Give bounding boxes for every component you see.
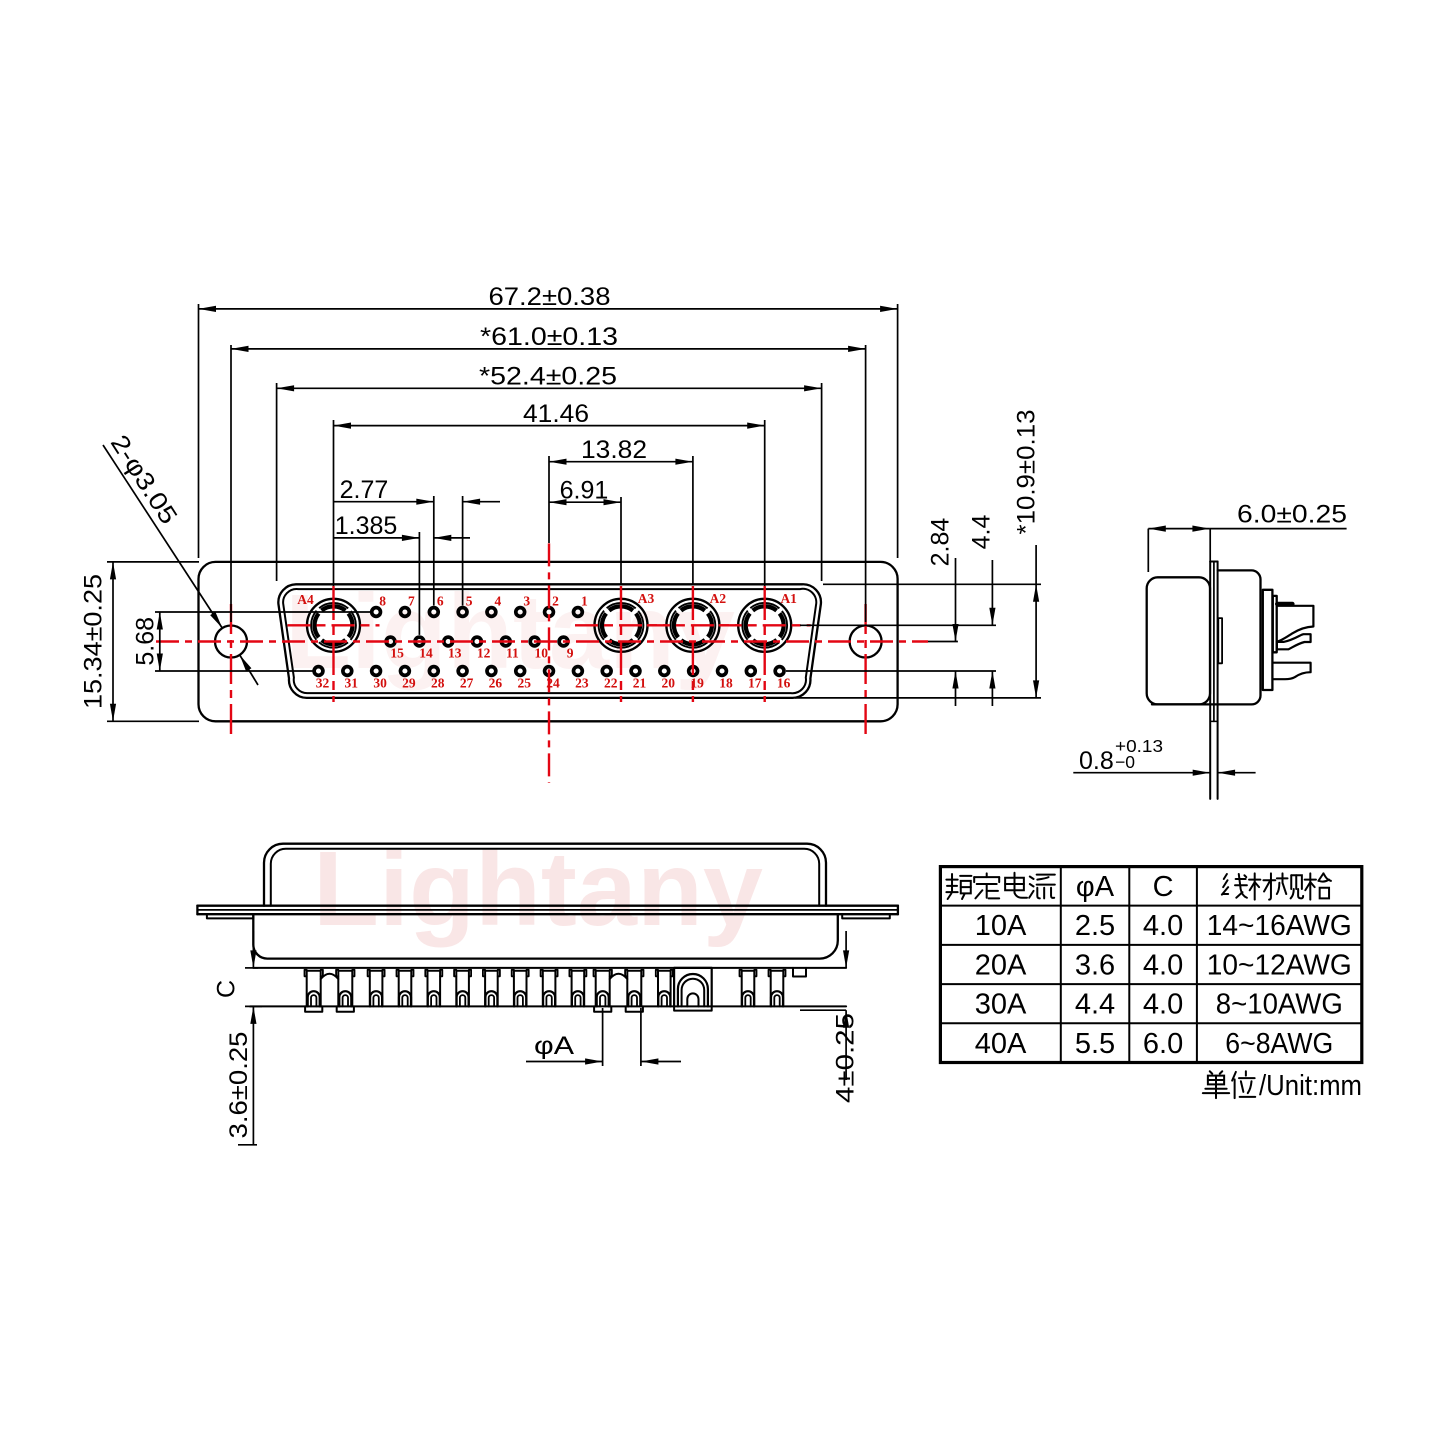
svg-text:/Unit:mm: /Unit:mm: [1259, 1070, 1362, 1102]
svg-text:8: 8: [379, 593, 386, 608]
svg-text:13: 13: [448, 646, 462, 661]
svg-text:6.0: 6.0: [1143, 1028, 1183, 1060]
svg-text:φA: φA: [534, 1032, 574, 1060]
svg-text:40A: 40A: [975, 1028, 1027, 1060]
svg-text:5: 5: [466, 593, 473, 608]
svg-text:4.0: 4.0: [1143, 910, 1183, 942]
svg-text:3.6: 3.6: [1075, 950, 1115, 982]
svg-text:15: 15: [390, 646, 404, 661]
svg-text:25: 25: [517, 676, 531, 691]
svg-text:6.91: 6.91: [560, 476, 609, 504]
svg-text:31: 31: [345, 676, 359, 691]
svg-text:41.46: 41.46: [523, 400, 589, 428]
svg-text:4: 4: [495, 593, 502, 608]
svg-text:32: 32: [316, 676, 330, 691]
svg-text:4.4: 4.4: [1075, 989, 1115, 1021]
svg-text:14: 14: [419, 646, 433, 661]
svg-text:8~10AWG: 8~10AWG: [1216, 989, 1343, 1021]
svg-text:14~16AWG: 14~16AWG: [1207, 910, 1352, 942]
svg-text:67.2±0.38: 67.2±0.38: [489, 283, 611, 311]
svg-text:φA: φA: [1076, 871, 1115, 903]
svg-text:30A: 30A: [975, 989, 1027, 1021]
svg-text:4.0: 4.0: [1143, 950, 1183, 982]
svg-text:1: 1: [581, 593, 588, 608]
svg-text:−0: −0: [1115, 752, 1135, 772]
svg-text:27: 27: [460, 676, 474, 691]
svg-text:20A: 20A: [975, 950, 1027, 982]
svg-text:2.84: 2.84: [927, 518, 955, 567]
svg-text:10A: 10A: [975, 910, 1027, 942]
svg-text:1.385: 1.385: [335, 512, 398, 540]
svg-text:2: 2: [552, 593, 559, 608]
svg-text:13.82: 13.82: [581, 436, 647, 464]
svg-text:15.34±0.25: 15.34±0.25: [80, 574, 108, 709]
svg-text:28: 28: [431, 676, 445, 691]
svg-text:0.8: 0.8: [1079, 747, 1114, 775]
svg-text:2.5: 2.5: [1075, 910, 1115, 942]
svg-text:*52.4±0.25: *52.4±0.25: [479, 363, 617, 391]
svg-text:C: C: [213, 980, 241, 998]
svg-text:29: 29: [402, 676, 416, 691]
svg-text:11: 11: [506, 646, 519, 661]
svg-text:16: 16: [777, 676, 791, 691]
svg-text:5.68: 5.68: [132, 617, 160, 666]
svg-text:A2: A2: [710, 591, 727, 606]
svg-text:23: 23: [575, 676, 589, 691]
svg-text:10~12AWG: 10~12AWG: [1207, 950, 1352, 982]
svg-text:A4: A4: [297, 592, 314, 607]
svg-text:18: 18: [719, 676, 733, 691]
svg-text:4.0: 4.0: [1143, 989, 1183, 1021]
svg-text:6.0±0.25: 6.0±0.25: [1237, 501, 1347, 529]
svg-text:6: 6: [437, 593, 444, 608]
svg-text:A3: A3: [638, 591, 655, 606]
svg-text:17: 17: [748, 676, 762, 691]
svg-text:3.6±0.25: 3.6±0.25: [225, 1032, 253, 1139]
svg-text:A1: A1: [780, 591, 797, 606]
svg-text:*10.9±0.13: *10.9±0.13: [1013, 410, 1041, 535]
svg-text:Lightany: Lightany: [313, 830, 763, 948]
svg-text:19: 19: [690, 676, 704, 691]
svg-text:24: 24: [546, 676, 560, 691]
svg-text:12: 12: [477, 646, 491, 661]
svg-text:21: 21: [633, 676, 647, 691]
svg-text:*61.0±0.13: *61.0±0.13: [480, 323, 618, 351]
svg-text:4±0.25: 4±0.25: [832, 1013, 860, 1103]
svg-text:10: 10: [534, 646, 548, 661]
svg-text:4.4: 4.4: [968, 515, 996, 550]
svg-text:20: 20: [662, 676, 676, 691]
svg-text:2.77: 2.77: [340, 476, 389, 504]
svg-text:26: 26: [489, 676, 503, 691]
svg-text:C: C: [1153, 871, 1174, 903]
svg-text:6~8AWG: 6~8AWG: [1225, 1028, 1333, 1060]
svg-text:7: 7: [408, 593, 415, 608]
svg-text:3: 3: [523, 593, 530, 608]
svg-text:5.5: 5.5: [1075, 1028, 1115, 1060]
svg-text:30: 30: [373, 676, 387, 691]
svg-text:9: 9: [567, 646, 574, 661]
svg-text:22: 22: [604, 676, 618, 691]
